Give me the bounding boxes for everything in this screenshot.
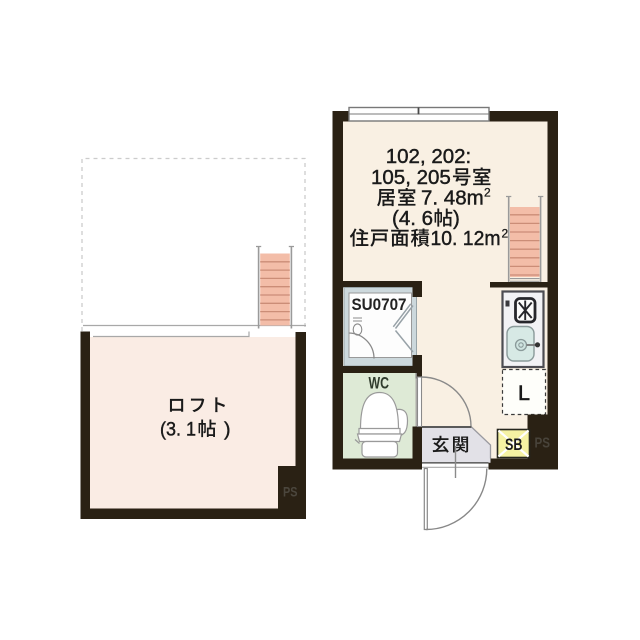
svg-text:WC: WC	[369, 375, 390, 393]
svg-text:): )	[224, 419, 231, 441]
svg-text:(3. 1: (3. 1	[160, 419, 196, 441]
svg-text:SB: SB	[505, 436, 523, 454]
svg-text:(4. 6: (4. 6	[392, 207, 433, 230]
svg-text:10. 12m: 10. 12m	[431, 227, 501, 250]
svg-text:PS: PS	[535, 435, 551, 452]
svg-text:L: L	[518, 381, 530, 405]
svg-text:SU0707: SU0707	[352, 296, 407, 314]
svg-text:2: 2	[484, 186, 491, 200]
svg-text:PS: PS	[283, 484, 298, 500]
svg-text:2: 2	[502, 227, 509, 241]
svg-text:102, 202:: 102, 202:	[386, 145, 472, 168]
